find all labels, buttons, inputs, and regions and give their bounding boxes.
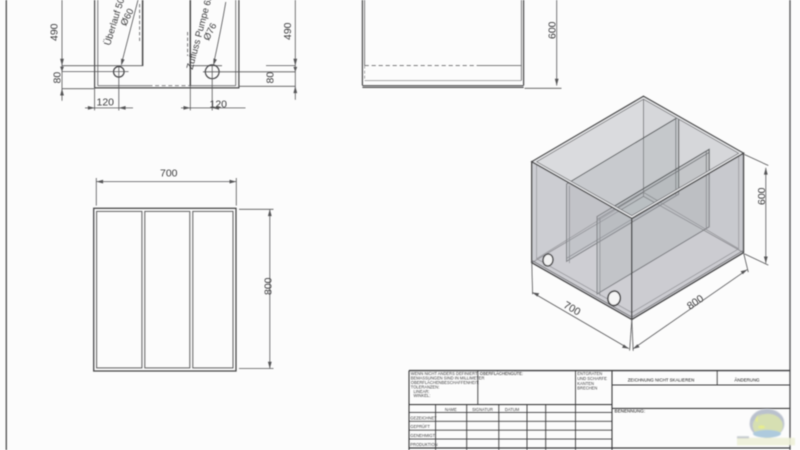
svg-text:ÄNDERUNG: ÄNDERUNG bbox=[734, 377, 760, 382]
svg-text:600: 600 bbox=[756, 187, 768, 205]
svg-text:BENENNUNG:: BENENNUNG: bbox=[615, 408, 646, 413]
svg-text:GEPRÜFT: GEPRÜFT bbox=[410, 424, 430, 429]
svg-text:WINKEL:: WINKEL: bbox=[414, 393, 431, 398]
svg-text:700: 700 bbox=[160, 168, 178, 180]
svg-text:80: 80 bbox=[52, 72, 64, 84]
svg-text:BRECHEN: BRECHEN bbox=[577, 386, 597, 391]
svg-text:GENEHMIGT: GENEHMIGT bbox=[410, 433, 435, 438]
svg-text:80: 80 bbox=[265, 72, 277, 84]
svg-text:490: 490 bbox=[282, 22, 294, 40]
svg-text:ZEICHNUNG NICHT SKALIEREN: ZEICHNUNG NICHT SKALIEREN bbox=[628, 377, 695, 382]
svg-text:SIGNATUR: SIGNATUR bbox=[472, 407, 493, 412]
svg-text:NAME: NAME bbox=[445, 407, 457, 412]
svg-text:490: 490 bbox=[49, 23, 61, 41]
svg-text:DATUM: DATUM bbox=[505, 407, 520, 412]
svg-text:120: 120 bbox=[210, 99, 228, 111]
svg-text:GEZEICHNET: GEZEICHNET bbox=[410, 415, 437, 420]
svg-text:PRODUKTION: PRODUKTION bbox=[410, 442, 437, 447]
svg-text:OBERFLÄCHENGÜTE:: OBERFLÄCHENGÜTE: bbox=[480, 371, 523, 376]
svg-text:120: 120 bbox=[97, 97, 115, 109]
svg-text:600: 600 bbox=[547, 21, 559, 39]
svg-text:800: 800 bbox=[263, 277, 275, 295]
